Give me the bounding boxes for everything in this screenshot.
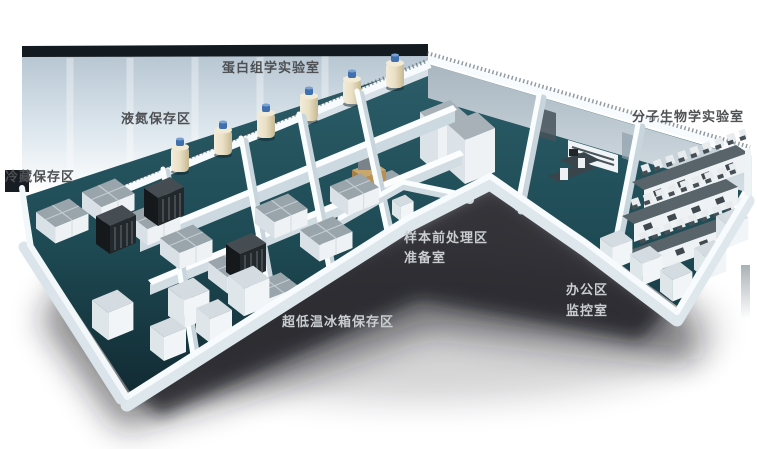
label-office-area: 办公区: [566, 283, 608, 296]
label-monitoring-room: 监控室: [566, 304, 608, 317]
label-preparation-room: 准备室: [404, 251, 446, 264]
label-cold-storage-area: 冷藏保存区: [5, 170, 75, 183]
label-sample-pretreatment: 样本前处理区: [404, 231, 488, 244]
label-proteomics-lab: 蛋白组学实验室: [222, 61, 320, 74]
label-liquid-nitrogen-area: 液氮保存区: [121, 112, 191, 125]
lab-floorplan-scene: 蛋白组学实验室 液氮保存区 冷藏保存区 分子生物学实验室 样本前处理区 准备室 …: [0, 0, 757, 449]
roof-cap: [22, 44, 428, 57]
floorplan-3d-render: [0, 0, 757, 449]
side-glow-bar: [741, 265, 750, 319]
label-ult-freezer-area: 超低温冰箱保存区: [282, 315, 394, 328]
label-molecular-biology-lab: 分子生物学实验室: [632, 110, 744, 123]
